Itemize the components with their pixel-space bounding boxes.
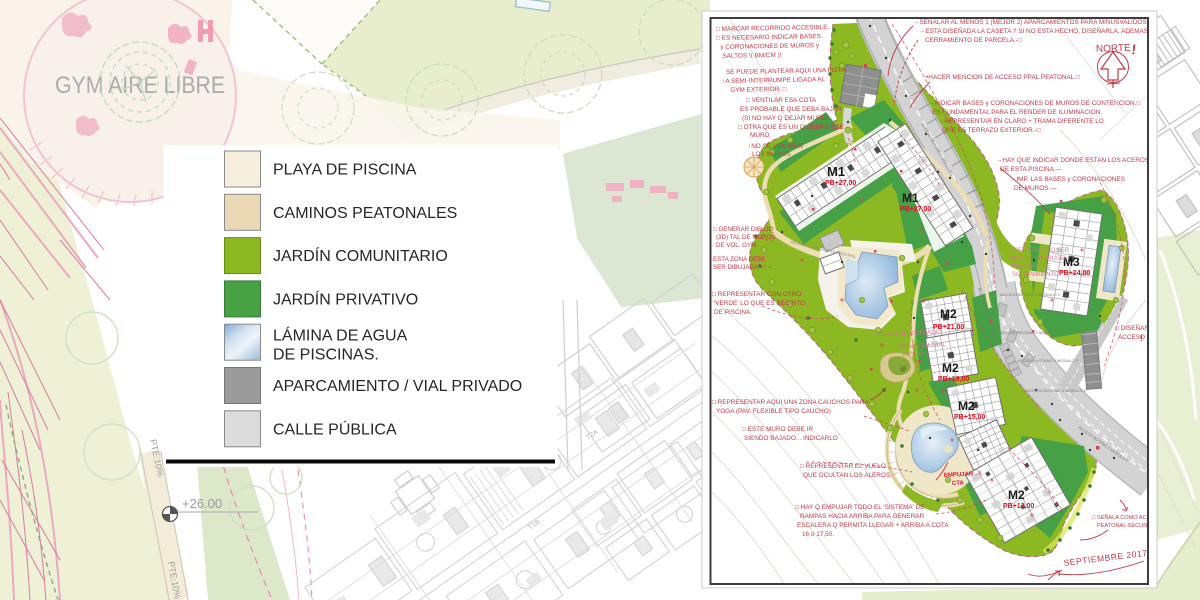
svg-text:ESTA ZONA DEBE: ESTA ZONA DEBE bbox=[713, 256, 766, 263]
svg-text:SALTOS !( BM/CM )!: SALTOS !( BM/CM )! bbox=[722, 52, 781, 60]
svg-text:□ REPRESENTAR EL VUELO: □ REPRESENTAR EL VUELO bbox=[800, 463, 886, 470]
svg-text:APARCAMIENTO / VIAL PRIVADO: APARCAMIENTO / VIAL PRIVADO bbox=[273, 378, 522, 395]
svg-text:M1: M1 bbox=[827, 164, 845, 179]
svg-text:(3D) TAL DE MUROS: (3D) TAL DE MUROS bbox=[716, 234, 775, 241]
svg-text:DE PISCINA.: DE PISCINA. bbox=[714, 309, 752, 316]
svg-text:MURO: MURO bbox=[750, 132, 770, 139]
svg-text:□ REPRESENTAR CON OTRO: □ REPRESENTAR CON OTRO bbox=[712, 291, 801, 298]
svg-text:M2: M2 bbox=[940, 307, 957, 321]
svg-text:PB+24,00: PB+24,00 bbox=[1059, 270, 1090, 277]
svg-text:•HACER MENCION DE ACCESO PPAL: •HACER MENCION DE ACCESO PPAL PEATONAL □ bbox=[926, 74, 1080, 81]
svg-text:GYM AIRE LIBRE: GYM AIRE LIBRE bbox=[55, 72, 225, 99]
svg-text:M2: M2 bbox=[942, 361, 959, 375]
svg-text:→HAY QUE INDICAR DONDE ESTAN L: →HAY QUE INDICAR DONDE ESTAN LOS ACEROS bbox=[996, 157, 1149, 164]
svg-text:DE PISCINAS.: DE PISCINAS. bbox=[273, 347, 379, 364]
svg-text:CALLE PÚBLICA: CALLE PÚBLICA bbox=[273, 419, 397, 438]
svg-text:JARDÍN PRIVATIVO: JARDÍN PRIVATIVO bbox=[273, 289, 418, 308]
svg-text:□ ESTO TIENE Q SER: □ ESTO TIENE Q SER bbox=[1008, 248, 1070, 254]
svg-text:→ESTA DISEÑADA LA CASETA ? SI: →ESTA DISEÑADA LA CASETA ? SI NO ESTA HE… bbox=[919, 26, 1163, 35]
svg-text:PB+15,00: PB+15,00 bbox=[954, 414, 985, 421]
svg-text:LÁMINA DE AGUA: LÁMINA DE AGUA bbox=[273, 326, 408, 345]
svg-text:M2: M2 bbox=[1008, 488, 1025, 502]
svg-text:CAMINOS PEATONALES: CAMINOS PEATONALES bbox=[273, 205, 457, 222]
svg-text:□ GENERAR DIBUJO: □ GENERAR DIBUJO bbox=[713, 226, 774, 233]
svg-text:INDICAR ESE: INDICAR ESE bbox=[1012, 264, 1050, 270]
svg-text:'VERDE' LO QUE ES RECINTO: 'VERDE' LO QUE ES RECINTO bbox=[714, 300, 805, 307]
svg-text:ACCESO BOTANO 2 MODULO 2: ACCESO BOTANO 2 MODULO 2 bbox=[1018, 358, 1079, 363]
svg-text:□ ESTE MURO DEBE IR: □ ESTE MURO DEBE IR bbox=[742, 426, 813, 433]
svg-text:ACCESO BOTANO 2 MODULO 2: ACCESO BOTANO 2 MODULO 2 bbox=[1000, 292, 1061, 297]
svg-text:ACCESO BOTANO 2 MODULO 2: ACCESO BOTANO 2 MODULO 2 bbox=[1000, 330, 1061, 335]
svg-text:+26.00: +26.00 bbox=[182, 496, 222, 511]
svg-text:→INDICAR BASES y CORONACIONES: →INDICAR BASES y CORONACIONES DE MUROS D… bbox=[928, 100, 1140, 107]
svg-text:MAS DE CARRUSEL,: MAS DE CARRUSEL, bbox=[1010, 256, 1069, 262]
svg-text:□ HAY Q EMPUJAR TODO EL 'SISTE: □ HAY Q EMPUJAR TODO EL 'SISTEMA' DE bbox=[795, 504, 925, 511]
svg-text:ES PROBABLE QUE DEBA BAJAR: ES PROBABLE QUE DEBA BAJAR bbox=[740, 106, 842, 113]
svg-text:PB+27,00: PB+27,00 bbox=[900, 206, 931, 213]
svg-text:→IMP. LAS BASES y CORONACIONES: →IMP. LAS BASES y CORONACIONES bbox=[1010, 176, 1125, 183]
svg-text:SIENDO BAJADO... INDICARLO: SIENDO BAJADO... INDICARLO bbox=[744, 435, 838, 442]
svg-text:□ REPRESENTAR AQUI UNA ZONA CA: □ REPRESENTAR AQUI UNA ZONA CAUCHOS PARA bbox=[712, 399, 869, 406]
svg-text:M1: M1 bbox=[902, 191, 919, 205]
svg-text:SER DIBUJADA ←: SER DIBUJADA ← bbox=[713, 264, 766, 271]
svg-text:↑NO SE VEN BIEN: ↑NO SE VEN BIEN bbox=[748, 143, 803, 150]
svg-text:16 o 17,50.: 16 o 17,50. bbox=[802, 531, 834, 538]
svg-text:□ OTRA QUE ES UN QUIEBRO ESE: □ OTRA QUE ES UN QUIEBRO ESE bbox=[738, 124, 844, 131]
svg-text:DE ESTA PISCINA.—: DE ESTA PISCINA.— bbox=[1000, 166, 1063, 173]
svg-text:→REPRESENTAR EN CLARO + TRAMA: →REPRESENTAR EN CLARO + TRAMA DIFERENTE … bbox=[938, 118, 1104, 125]
svg-text:JARDÍN COMUNITARIO: JARDÍN COMUNITARIO bbox=[273, 246, 448, 265]
svg-text:YOGA (PAV. FLEXIBLE TIPO CAUCH: YOGA (PAV. FLEXIBLE TIPO CAUCHO) bbox=[716, 408, 831, 415]
svg-text:CERRAMIENTO DE PARCELA.-□: CERRAMIENTO DE PARCELA.-□ bbox=[925, 37, 1022, 44]
svg-text:RAMPAS HACIA ARRIBA PARA GENER: RAMPAS HACIA ARRIBA PARA GENERAR bbox=[800, 513, 924, 520]
svg-text:SOLAPAMIENTO: SOLAPAMIENTO bbox=[1012, 272, 1059, 278]
svg-text:□ DISEÑAR: □ DISEÑAR bbox=[1115, 323, 1149, 332]
svg-text:ACCESO BOTANO 5 MODULO 2: ACCESO BOTANO 5 MODULO 2 bbox=[1026, 388, 1087, 393]
svg-text:CTA: CTA bbox=[952, 480, 965, 487]
svg-text:QUE OCULTAN LOS ALEROS.: QUE OCULTAN LOS ALEROS. bbox=[803, 472, 892, 479]
svg-text:□ VENTILAR ESA COTA: □ VENTILAR ESA COTA bbox=[746, 97, 817, 104]
svg-text:QUE ES TERRAZO EXTERIOR.-□: QUE ES TERRAZO EXTERIOR.-□ bbox=[942, 127, 1041, 134]
svg-text:GYM EXTERIOR. □: GYM EXTERIOR. □ bbox=[730, 86, 787, 94]
svg-text:DE VOL. GYM.: DE VOL. GYM. bbox=[716, 242, 758, 249]
svg-text:(SI NO HAY Q DEJAR MURO): (SI NO HAY Q DEJAR MURO) bbox=[742, 115, 829, 122]
svg-text:PLAYA DE PISCINA: PLAYA DE PISCINA bbox=[273, 162, 417, 179]
svg-text:M2: M2 bbox=[958, 399, 975, 413]
svg-text:LOS MUROS: LOS MUROS bbox=[752, 151, 790, 158]
svg-text:ESCALERA Q PERMITA LLEGAR + AR: ESCALERA Q PERMITA LLEGAR + ARRIBA A COT… bbox=[797, 522, 949, 529]
svg-text:1=PISO →: 1=PISO → bbox=[902, 351, 931, 358]
svg-text:PB+27,00: PB+27,00 bbox=[825, 180, 856, 187]
svg-text:PB+12,00: PB+12,00 bbox=[1003, 503, 1034, 510]
svg-text:PB+18,00: PB+18,00 bbox=[938, 376, 969, 383]
svg-text:!: ! bbox=[1140, 333, 1143, 343]
svg-text:DE MUROS.—: DE MUROS.— bbox=[1014, 185, 1057, 192]
svg-text:ES FUNDAMENTAL PARA EL RENDER: ES FUNDAMENTAL PARA EL RENDER DE ILUMINA… bbox=[932, 109, 1102, 116]
